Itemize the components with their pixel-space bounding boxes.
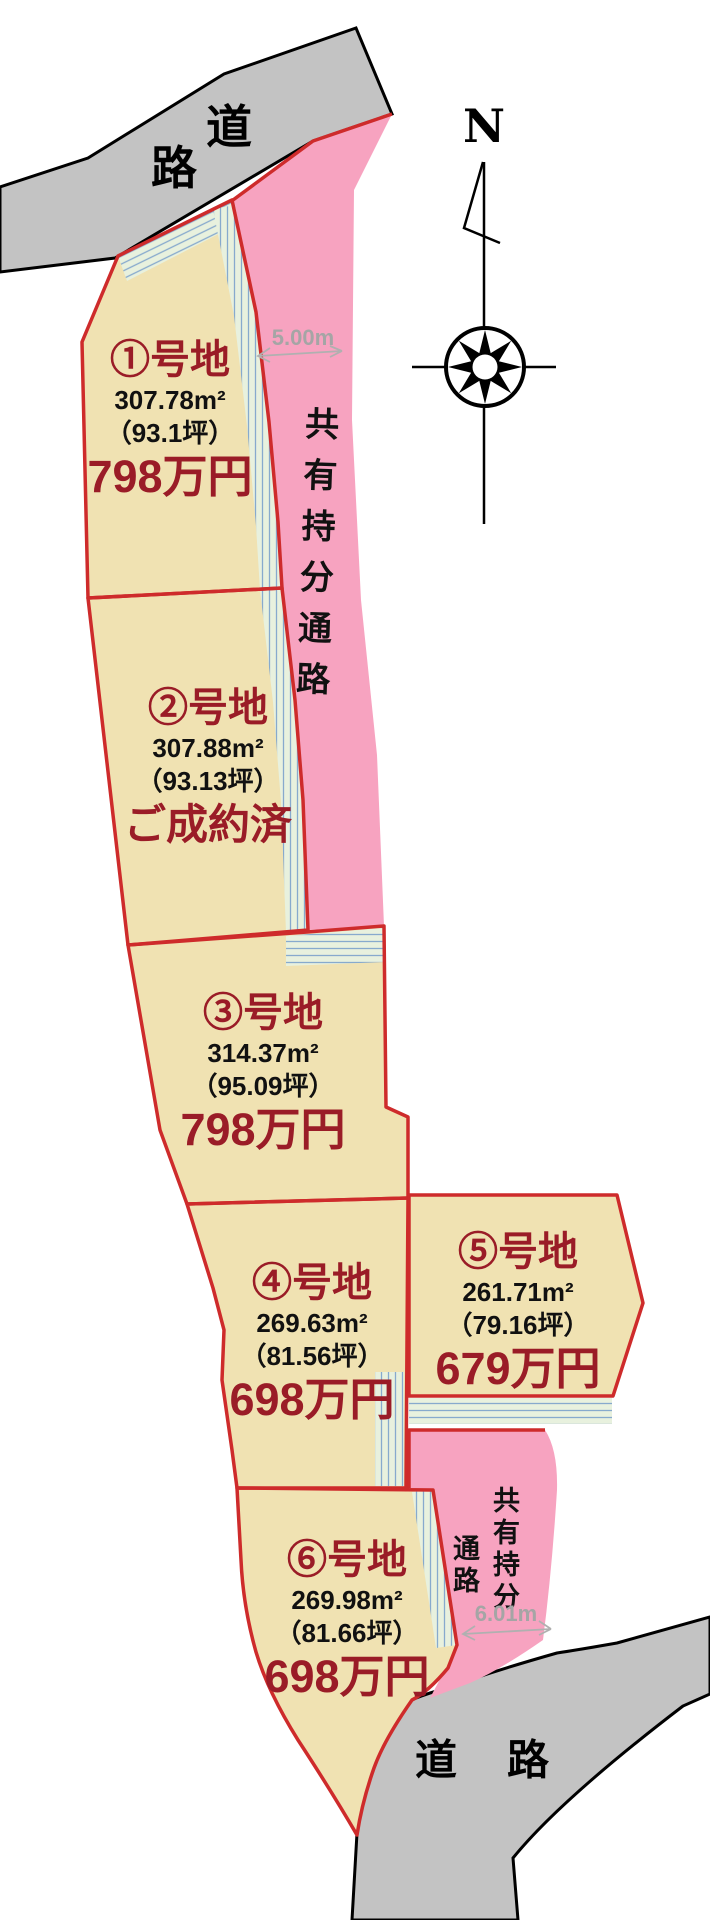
road-top-label-char2: 路: [151, 132, 197, 198]
land-plot-map: 道 路 道 路 N 共有持分通路 5.00m 共有持分 通路 6.01m ①号地…: [0, 0, 710, 1920]
lot-4-number: ④号地: [229, 1259, 394, 1307]
lot-5-label: ⑤号地 261.71m² （79.16坪） 679万円: [435, 1228, 600, 1395]
lot-6-tsubo: （81.66坪）: [264, 1617, 429, 1650]
north-arrow-flag: [464, 162, 500, 243]
lot-2-number: ②号地: [124, 684, 292, 732]
lot-4-area: 269.63m²: [229, 1307, 394, 1340]
shared-path-bottom-width: 6.01m: [475, 1601, 537, 1627]
lot-3-area: 314.37m²: [180, 1037, 345, 1070]
lot-4-price: 698万円: [229, 1373, 394, 1426]
road-bottom-label: 道 路: [415, 1727, 553, 1788]
compass-north-label: N: [463, 99, 505, 153]
lot-4-tsubo: （81.56坪）: [229, 1340, 394, 1373]
lot-6-label: ⑥号地 269.98m² （81.66坪） 698万円: [264, 1536, 429, 1703]
lot-5-tsubo: （79.16坪）: [435, 1309, 600, 1342]
lot-3-label: ③号地 314.37m² （95.09坪） 798万円: [180, 989, 345, 1156]
compass-rose-icon: [412, 162, 556, 524]
shared-path-top-width: 5.00m: [272, 325, 334, 351]
shared-path-bottom-label-col2: 通路: [450, 1534, 477, 1598]
lot-1-price: 798万円: [87, 450, 252, 503]
shared-path-bottom-label-col1: 共有持分: [490, 1486, 517, 1614]
lot-2-label: ②号地 307.88m² （93.13坪） ご成約済: [124, 684, 292, 851]
lot-2-status: ご成約済: [124, 798, 292, 851]
lot-4-label: ④号地 269.63m² （81.56坪） 698万円: [229, 1259, 394, 1426]
lot-6-price: 698万円: [264, 1650, 429, 1703]
lot-2-tsubo: （93.13坪）: [124, 765, 292, 798]
lot-6-number: ⑥号地: [264, 1536, 429, 1584]
road-top-label-char1: 道: [206, 91, 252, 157]
lot-5-area: 261.71m²: [435, 1276, 600, 1309]
lot-5-price: 679万円: [435, 1342, 600, 1395]
lot-5-number: ⑤号地: [435, 1228, 600, 1276]
lot-3-number: ③号地: [180, 989, 345, 1037]
lot-1-label: ①号地 307.78m² （93.1坪） 798万円: [87, 336, 252, 503]
lot-2-area: 307.88m²: [124, 732, 292, 765]
lot-1-tsubo: （93.1坪）: [87, 417, 252, 450]
lot-1-area: 307.78m²: [87, 384, 252, 417]
lot-3-tsubo: （95.09坪）: [180, 1070, 345, 1103]
lot-3-price: 798万円: [180, 1103, 345, 1156]
slope-band-below-lot5: [409, 1398, 612, 1424]
lot-1-number: ①号地: [87, 336, 252, 384]
lot-6-area: 269.98m²: [264, 1584, 429, 1617]
